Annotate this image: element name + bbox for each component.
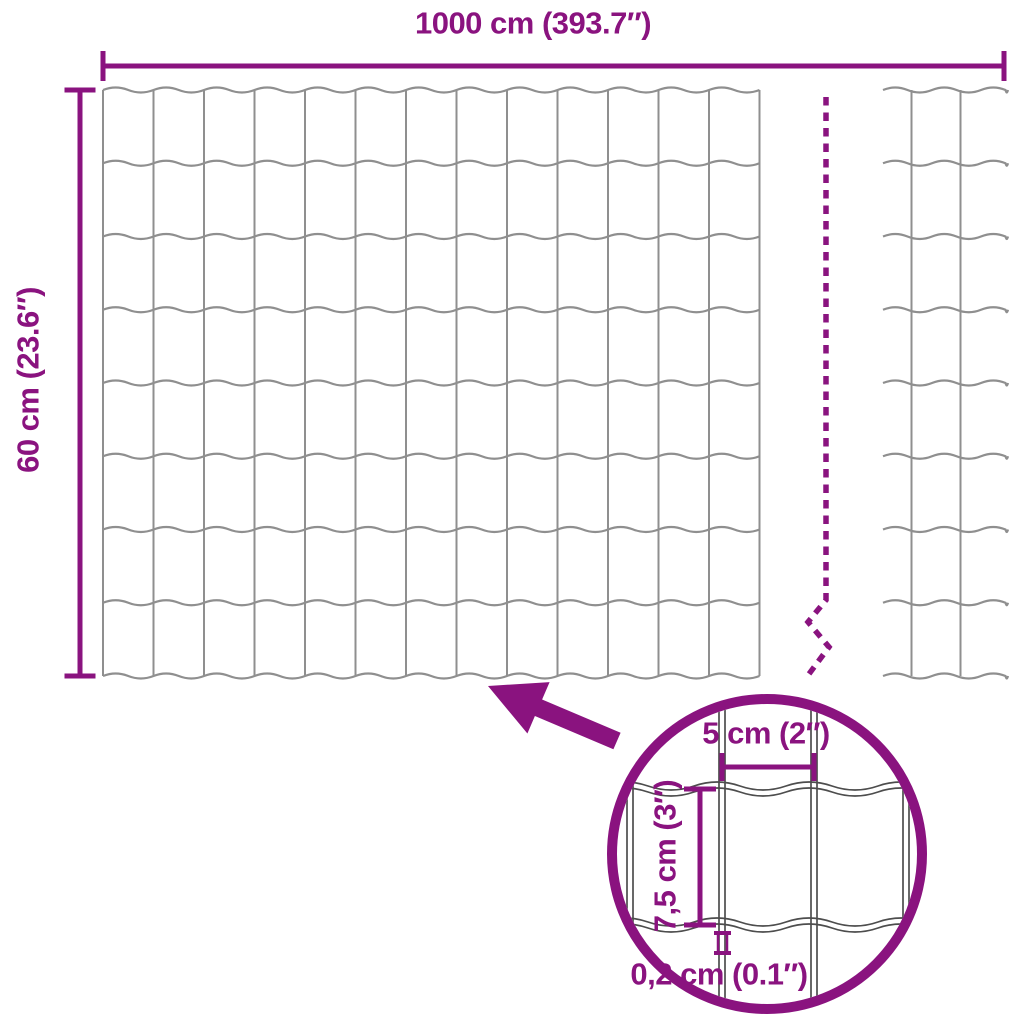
product-diagram: 1000 cm (393.7″) 60 cm (23.6″) 5 cm (2″)… (0, 0, 1024, 1024)
zoom-arrow-icon (488, 682, 621, 749)
detail-cell-height-label: 7,5 cm (3″) (650, 780, 681, 932)
width-dimension-line (103, 51, 1004, 81)
width-dimension-label: 1000 cm (393.7″) (415, 8, 651, 39)
detail-wire-thickness-label: 0,2 cm (0.1″) (630, 959, 807, 990)
break-dashed-line (806, 97, 829, 678)
side-mesh-piece (883, 88, 1008, 679)
height-dimension-label: 60 cm (23.6″) (13, 287, 44, 473)
height-dimension-line (65, 90, 96, 676)
fence-dimension-drawing (0, 0, 1024, 1024)
detail-cell-width-label: 5 cm (2″) (702, 718, 830, 749)
main-mesh (103, 88, 760, 679)
